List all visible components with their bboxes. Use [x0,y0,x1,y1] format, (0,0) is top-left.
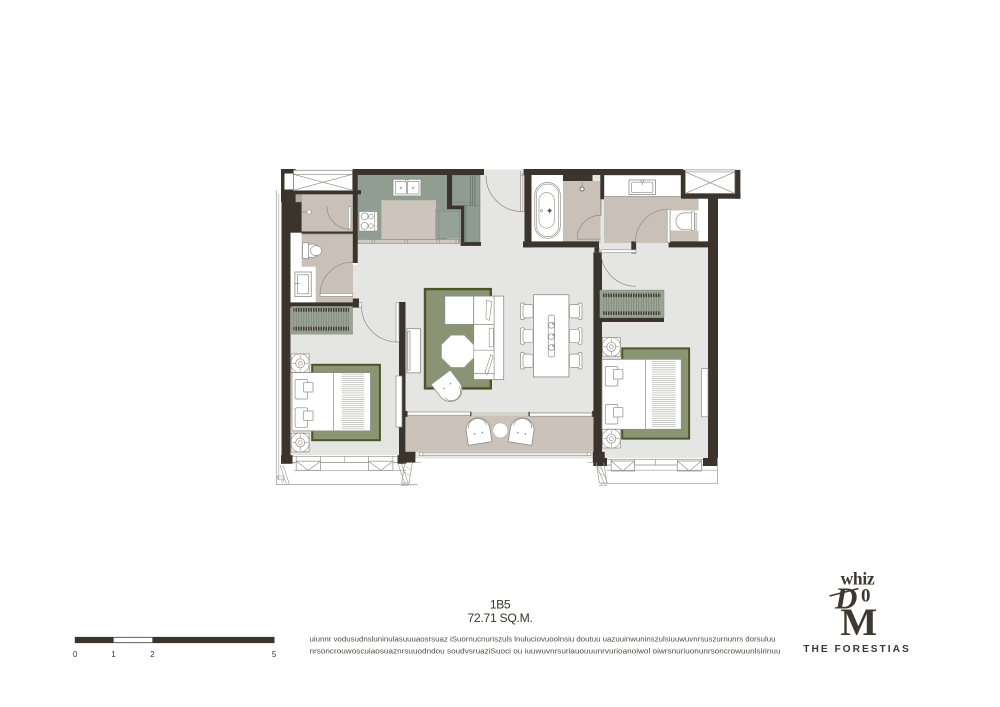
svg-text:THE FORESTIAS: THE FORESTIAS [803,644,911,655]
svg-text:2: 2 [150,650,154,659]
svg-text:5: 5 [272,650,277,659]
svg-text:0: 0 [73,650,78,659]
svg-text:M: M [840,601,877,644]
svg-text:1: 1 [111,650,115,659]
svg-text:1B5: 1B5 [490,598,511,612]
svg-text:nrsoncrouwoscuiaosuaznrsuuodnd: nrsoncrouwoscuiaosuaznrsuuodndou soudvsr… [310,647,781,656]
svg-text:72.71 SQ.M.: 72.71 SQ.M. [467,611,532,625]
svg-text:uiunnr vodusudnsluninulasuuuao: uiunnr vodusudnsluninulasuuuaosrsuaz iSu… [310,635,776,644]
